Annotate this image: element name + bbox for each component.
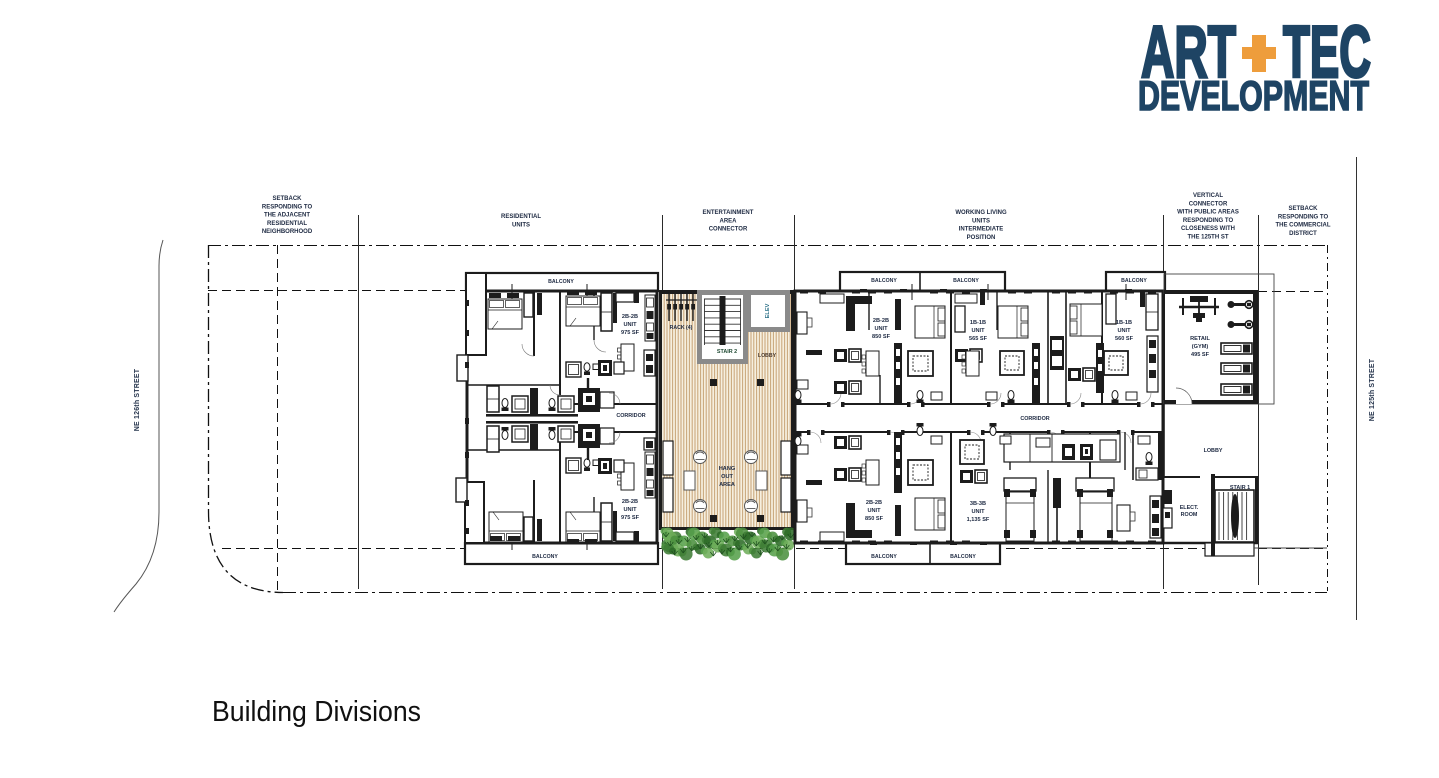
svg-text:Building Divisions: Building Divisions [212,696,421,728]
svg-text:INTERMEDIATE: INTERMEDIATE [959,227,1004,233]
svg-text:WITH PUBLIC AREAS: WITH PUBLIC AREAS [1177,210,1239,216]
svg-text:1,135 SF: 1,135 SF [967,517,990,523]
svg-text:(GYM): (GYM) [1192,344,1209,350]
svg-text:HANG: HANG [719,466,735,472]
svg-text:ELECT.: ELECT. [1180,505,1199,511]
svg-text:THE ADJACENT: THE ADJACENT [264,213,310,219]
svg-text:UNIT: UNIT [623,322,637,328]
svg-text:THE 125TH ST: THE 125TH ST [1187,235,1228,241]
svg-text:3B-3B: 3B-3B [970,501,986,507]
svg-text:NEIGHBORHOOD: NEIGHBORHOOD [262,229,313,235]
svg-text:975 SF: 975 SF [621,515,640,521]
svg-text:RETAIL: RETAIL [1190,336,1210,342]
svg-text:RESPONDING TO: RESPONDING TO [262,204,313,210]
svg-text:BALCONY: BALCONY [532,554,558,560]
svg-text:CORRIDOR: CORRIDOR [616,413,645,419]
svg-text:ELEV: ELEV [765,303,771,318]
svg-text:CLOSENESS WITH: CLOSENESS WITH [1181,226,1235,232]
svg-text:2B-2B: 2B-2B [622,499,638,505]
svg-text:560 SF: 560 SF [1115,336,1134,342]
svg-text:WORKING LIVING: WORKING LIVING [955,210,1007,216]
svg-text:BALCONY: BALCONY [548,279,574,285]
svg-text:1B-1B: 1B-1B [1116,320,1132,326]
svg-text:BALCONY: BALCONY [953,278,979,284]
svg-text:CONNECTOR: CONNECTOR [1189,201,1228,207]
svg-text:2B-2B: 2B-2B [866,500,882,506]
svg-text:RESPONDING TO: RESPONDING TO [1278,214,1329,220]
svg-text:495 SF: 495 SF [1191,352,1210,358]
svg-text:THE COMMERCIAL: THE COMMERCIAL [1276,223,1331,229]
svg-text:STAIR 2: STAIR 2 [717,349,737,355]
svg-text:850 SF: 850 SF [865,516,884,522]
svg-text:RACK (4): RACK (4) [670,325,693,331]
svg-text:VERTICAL: VERTICAL [1193,193,1223,199]
svg-text:STAIR 1: STAIR 1 [1230,485,1250,491]
svg-text:NE 126th STREET: NE 126th STREET [134,368,141,431]
svg-text:UNITS: UNITS [972,218,990,224]
svg-text:975 SF: 975 SF [621,330,640,336]
svg-text:UNIT: UNIT [1117,328,1131,334]
svg-text:UNIT: UNIT [874,326,888,332]
svg-text:UNIT: UNIT [971,328,985,334]
svg-text:CORRIDOR: CORRIDOR [1020,416,1049,422]
svg-text:NE 125th STREET: NE 125th STREET [1369,358,1376,421]
svg-text:UNITS: UNITS [512,222,530,228]
svg-text:850 SF: 850 SF [872,334,891,340]
svg-text:DEVELOPMENT: DEVELOPMENT [1138,72,1369,119]
svg-text:ENTERTAINMENT: ENTERTAINMENT [703,210,754,216]
svg-text:LOBBY: LOBBY [1204,448,1223,454]
svg-text:OUT: OUT [721,474,733,480]
svg-text:BALCONY: BALCONY [871,278,897,284]
svg-text:2B-2B: 2B-2B [622,314,638,320]
svg-text:UNIT: UNIT [971,509,985,515]
svg-text:CONNECTOR: CONNECTOR [709,227,748,233]
svg-text:2B-2B: 2B-2B [873,318,889,324]
svg-text:BALCONY: BALCONY [1121,278,1147,284]
svg-text:UNIT: UNIT [867,508,881,514]
svg-text:ROOM: ROOM [1181,512,1198,518]
svg-text:SETBACK: SETBACK [1288,206,1318,212]
svg-text:565 SF: 565 SF [969,336,988,342]
svg-text:BALCONY: BALCONY [950,554,976,560]
svg-text:UNIT: UNIT [623,507,637,513]
svg-text:AREA: AREA [719,482,735,488]
svg-text:RESPONDING TO: RESPONDING TO [1183,218,1234,224]
svg-text:1B-1B: 1B-1B [970,320,986,326]
svg-text:DISTRICT: DISTRICT [1289,231,1317,237]
svg-text:LOBBY: LOBBY [758,353,777,359]
svg-text:POSITION: POSITION [967,235,996,241]
svg-text:BALCONY: BALCONY [871,554,897,560]
svg-text:SETBACK: SETBACK [272,196,302,202]
svg-text:RESIDENTIAL: RESIDENTIAL [501,214,541,220]
svg-text:RESIDENTIAL: RESIDENTIAL [267,221,307,227]
svg-text:AREA: AREA [719,218,737,224]
